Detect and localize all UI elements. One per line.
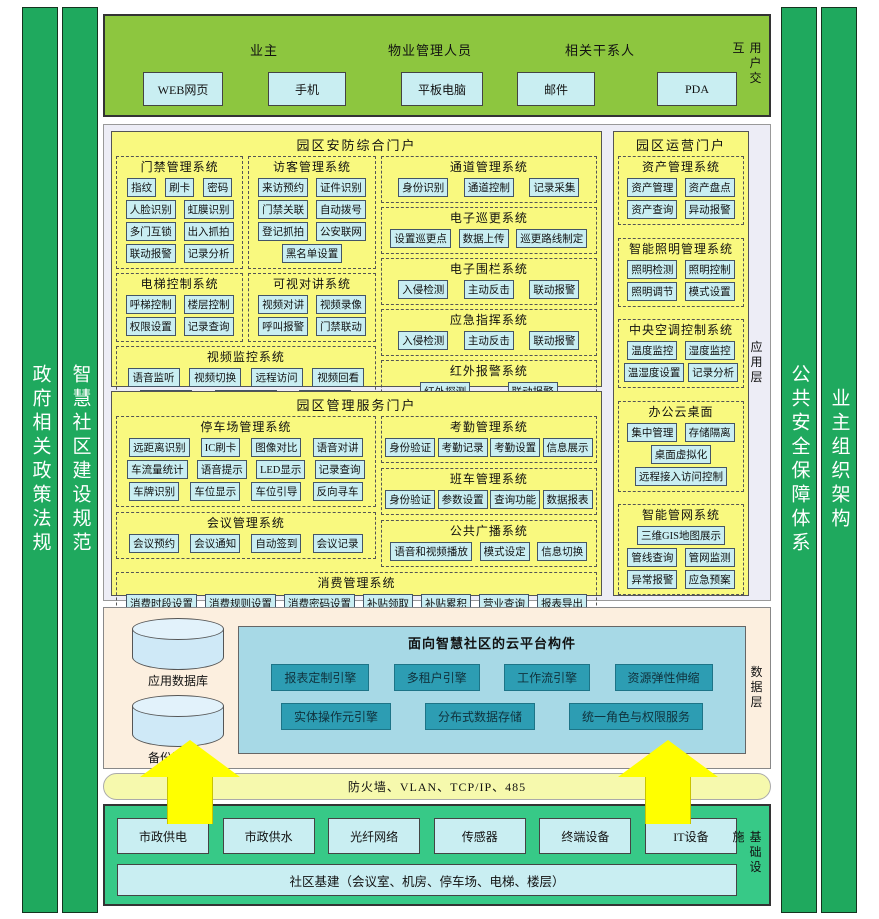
feature-row: 资产管理资产盘点 [622,178,740,197]
feature-chip: 视频切换 [189,368,241,387]
elevator-system: 电梯控制系统 呼梯控制楼层控制权限设置记录查询 [116,273,243,342]
feature-chip: 自动签到 [251,534,301,553]
feature-chip: 语音对讲 [313,438,363,457]
sidebar-policy-regulations: 政府相关政策法规 [22,7,58,913]
feature-chip: 身份识别 [398,178,448,197]
feature-row: 语音监听视频切换远程访问视频回看 [120,368,372,387]
feature-chip: 数据上传 [459,229,509,248]
public-broadcast-system: 公共广播系统 语音和视频播放模式设定信息切换 [381,520,597,567]
portal-title: 园区管理服务门户 [116,394,597,416]
patrol-system: 电子巡更系统 设置巡更点数据上传巡更路线制定 [381,207,597,254]
feature-chip: 异动报警 [685,200,735,219]
feature-row: 权限设置记录查询 [120,317,239,336]
fence-system: 电子围栏系统 入侵检测主动反击联动报警 [381,258,597,305]
feature-row: 指纹刷卡密码 [120,178,239,197]
user-group-owner: 业主 [250,40,278,59]
feature-row: 桌面虚拟化 [622,445,740,464]
feature-chip: 资产管理 [627,178,677,197]
sidebar-label: 智慧社区建设规范 [67,364,94,556]
channel-system: 通道管理系统 身份识别通道控制记录采集 [381,156,597,203]
hvac-control-system: 中央空调控制系统 温度监控湿度监控温湿度设置记录分析 [618,319,744,388]
cloud-desktop-system: 办公云桌面 集中管理存储隔离桌面虚拟化远程接入访问控制 [618,401,744,492]
community-base-box: 社区基建（会议室、机房、停车场、电梯、楼层） [117,864,737,896]
feature-chip: 会议通知 [190,534,240,553]
feature-chip: 记录分析 [184,244,234,263]
feature-chip: 联动报警 [529,331,579,350]
feature-chip: 存储隔离 [685,423,735,442]
feature-chip: 多门互锁 [126,222,176,241]
feature-row: 集中管理存储隔离 [622,423,740,442]
asset-system: 资产管理系统 资产管理资产盘点资产查询异动报警 [618,156,744,225]
shuttle-bus-system: 班车管理系统 身份验证参数设置查询功能数据报表 [381,468,597,515]
layer-label-infrastructure: 基础设施 [730,831,764,880]
feature-row: 身份识别通道控制记录采集 [385,178,593,197]
feature-chip: 照明调节 [627,282,677,301]
feature-chip: 身份验证 [385,438,435,457]
feature-row: 语音和视频播放模式设定信息切换 [385,542,593,561]
meeting-system: 会议管理系统 会议预约会议通知自动签到会议记录 [116,512,376,559]
feature-chip: 工作流引擎 [504,664,590,691]
device-pda: PDA [657,72,737,106]
feature-row: 会议预约会议通知自动签到会议记录 [120,534,372,553]
feature-chip: 设置巡更点 [390,229,451,248]
database-cylinder [132,618,224,670]
feature-row: 入侵检测主动反击联动报警 [385,280,593,299]
feature-row: 黑名单设置 [252,244,371,263]
feature-row: 车流量统计语音提示LED显示记录查询 [120,460,372,479]
feature-row: 照明检测照明控制 [622,260,740,279]
feature-chip: 主动反击 [464,331,514,350]
feature-chip: 入侵检测 [398,331,448,350]
feature-row: 来访预约证件识别 [252,178,371,197]
operation-portal: 园区运营门户 资产管理系统 资产管理资产盘点资产查询异动报警 智能照明管理系统 … [613,131,749,596]
feature-chip: 语音和视频播放 [390,542,472,561]
feature-chip: 实体操作元引擎 [281,703,391,730]
feature-row: 多门互锁出入抓拍 [120,222,239,241]
feature-chip: 视频回看 [312,368,364,387]
feature-chip: 通道控制 [464,178,514,197]
sidebar-label: 公共安全保障体系 [786,364,813,556]
feature-chip: 车位引导 [251,482,301,501]
feature-row: 实体操作元引擎分布式数据存储统一角色与权限服务 [247,703,737,730]
feature-chip: 记录查询 [315,460,365,479]
feature-chip: 三维GIS地图展示 [637,526,725,545]
feature-chip: 集中管理 [627,423,677,442]
feature-chip: 证件识别 [316,178,366,197]
feature-chip: 密码 [203,178,232,197]
feature-row: 呼叫报警门禁联动 [252,317,371,336]
layer-label-user-interaction: 用户交互 [730,41,764,91]
attendance-system: 考勤管理系统 身份验证考勤记录考勤设置信息展示 [381,416,597,463]
feature-chip: 公安联网 [316,222,366,241]
feature-chip: 统一角色与权限服务 [569,703,703,730]
feature-chip: 图像对比 [251,438,301,457]
feature-chip: 资源弹性伸缩 [615,664,713,691]
user-group-stakeholders: 相关干系人 [565,40,635,59]
feature-chip: 自动拨号 [316,200,366,219]
feature-row: 人脸识别虹膜识别 [120,200,239,219]
feature-chip: 指纹 [127,178,156,197]
feature-chip: 联动报警 [529,280,579,299]
sidebar-construction-standards: 智慧社区建设规范 [62,7,98,913]
sidebar-label: 业主组织架构 [826,388,853,532]
feature-chip: 多租户引擎 [394,664,480,691]
feature-row: 设置巡更点数据上传巡更路线制定 [385,229,593,248]
feature-row: 温度监控湿度监控 [622,341,740,360]
feature-chip: 考勤设置 [490,438,540,457]
feature-row: 身份验证考勤记录考勤设置信息展示 [385,438,593,457]
feature-chip: 人脸识别 [126,200,176,219]
feature-chip: 门禁联动 [316,317,366,336]
feature-chip: 门禁关联 [258,200,308,219]
up-arrow [140,740,240,824]
visitor-system: 访客管理系统 来访预约证件识别门禁关联自动拨号登记抓拍公安联网黑名单设置 [248,156,375,269]
cloud-platform-box: 面向智慧社区的云平台构件 报表定制引擎多租户引擎工作流引擎资源弹性伸缩实体操作元… [238,626,746,754]
infrastructure-box: 传感器 [434,818,526,854]
feature-chip: 登记抓拍 [258,222,308,241]
feature-chip: 考勤记录 [438,438,488,457]
sidebar-owner-organization: 业主组织架构 [821,7,857,913]
feature-row: 身份验证参数设置查询功能数据报表 [385,490,593,509]
feature-chip: 楼层控制 [184,295,234,314]
feature-chip: 湿度监控 [685,341,735,360]
feature-chip: 会议预约 [129,534,179,553]
feature-chip: 呼梯控制 [126,295,176,314]
feature-chip: 照明检测 [627,260,677,279]
sidebar-public-safety: 公共安全保障体系 [781,7,817,913]
feature-chip: 参数设置 [438,490,488,509]
arrow-head [618,740,718,777]
feature-chip: 语音监听 [128,368,180,387]
feature-chip: 信息切换 [537,542,587,561]
feature-chip: 资产盘点 [685,178,735,197]
feature-chip: 权限设置 [126,317,176,336]
feature-row: 登记抓拍公安联网 [252,222,371,241]
feature-chip: 视频对讲 [258,295,308,314]
feature-chip: IC刷卡 [201,438,241,457]
feature-chip: 反向寻车 [313,482,363,501]
feature-row: 呼梯控制楼层控制 [120,295,239,314]
up-arrow [618,740,718,824]
feature-chip: 联动报警 [126,244,176,263]
door-access-system: 门禁管理系统 指纹刷卡密码人脸识别虹膜识别多门互锁出入抓拍联动报警记录分析 [116,156,243,269]
feature-chip: 身份验证 [385,490,435,509]
feature-chip: 出入抓拍 [184,222,234,241]
feature-chip: 车牌识别 [129,482,179,501]
feature-chip: 照明控制 [685,260,735,279]
feature-chip: 呼叫报警 [258,317,308,336]
feature-chip: 远程访问 [251,368,303,387]
feature-chip: 信息展示 [543,438,593,457]
feature-row: 异常报警应急预案 [622,570,740,589]
infrastructure-box: 光纤网络 [328,818,420,854]
feature-chip: 异常报警 [627,570,677,589]
feature-chip: 温湿度设置 [624,363,685,382]
feature-chip: 记录采集 [529,178,579,197]
feature-chip: 查询功能 [490,490,540,509]
feature-row: 视频对讲视频录像 [252,295,371,314]
feature-chip: 管线查询 [627,548,677,567]
feature-row: 远距离识别IC刷卡图像对比语音对讲 [120,438,372,457]
feature-chip: 模式设置 [685,282,735,301]
feature-chip: 虹膜识别 [184,200,234,219]
feature-row: 照明调节模式设置 [622,282,740,301]
feature-chip: 车流量统计 [127,460,188,479]
layer-label-data: 数据层 [748,666,765,711]
feature-chip: 温度监控 [627,341,677,360]
feature-row: 远程接入访问控制 [622,467,740,486]
feature-chip: 视频录像 [316,295,366,314]
feature-row: 三维GIS地图展示 [622,526,740,545]
intercom-system: 可视对讲系统 视频对讲视频录像呼叫报警门禁联动 [248,273,375,342]
device-web: WEB网页 [143,72,223,106]
cloud-platform-title: 面向智慧社区的云平台构件 [247,633,737,652]
feature-chip: 来访预约 [258,178,308,197]
feature-chip: 分布式数据存储 [425,703,535,730]
user-interaction-layer: 业主 物业管理人员 相关干系人 WEB网页 手机 平板电脑 邮件 PDA 用户交… [103,14,771,117]
parking-system: 停车场管理系统 远距离识别IC刷卡图像对比语音对讲车流量统计语音提示LED显示记… [116,416,376,507]
database-label: 应用数据库 [148,672,208,689]
feature-chip: 资产查询 [627,200,677,219]
layer-label-application: 应用层 [748,340,765,385]
feature-chip: 模式设定 [480,542,530,561]
feature-chip: 语音提示 [197,460,247,479]
feature-chip: 远距离识别 [129,438,190,457]
arrow-body [167,777,213,824]
feature-chip: 报表定制引擎 [271,664,369,691]
feature-chip: 记录分析 [688,363,738,382]
feature-row: 联动报警记录分析 [120,244,239,263]
feature-chip: 刷卡 [165,178,194,197]
feature-chip: 黑名单设置 [282,244,343,263]
user-group-property-staff: 物业管理人员 [388,40,472,59]
feature-chip: 数据报表 [543,490,593,509]
feature-chip: 车位显示 [190,482,240,501]
network-bar-label: 防火墙、VLAN、TCP/IP、485 [348,778,526,795]
feature-chip: 记录查询 [184,317,234,336]
feature-row: 车牌识别车位显示车位引导反向寻车 [120,482,372,501]
portal-title: 园区运营门户 [618,134,744,156]
feature-chip: 巡更路线制定 [516,229,587,248]
device-email: 邮件 [517,72,595,106]
feature-chip: 主动反击 [464,280,514,299]
application-layer: 园区安防综合门户 门禁管理系统 指纹刷卡密码人脸识别虹膜识别多门互锁出入抓拍联动… [103,124,771,601]
portal-title: 园区安防综合门户 [116,134,597,156]
feature-row: 管线查询管网监测 [622,548,740,567]
feature-row: 温湿度设置记录分析 [622,363,740,382]
feature-chip: 桌面虚拟化 [651,445,712,464]
arrow-body [645,777,691,824]
smart-lighting-system: 智能照明管理系统 照明检测照明控制照明调节模式设置 [618,238,744,307]
feature-row: 门禁关联自动拨号 [252,200,371,219]
arrow-head [140,740,240,777]
feature-row: 资产查询异动报警 [622,200,740,219]
service-portal: 园区管理服务门户 停车场管理系统 远距离识别IC刷卡图像对比语音对讲车流量统计语… [111,391,602,596]
feature-row: 报表定制引擎多租户引擎工作流引擎资源弹性伸缩 [247,664,737,691]
feature-chip: LED显示 [256,460,305,479]
sidebar-label: 政府相关政策法规 [27,364,54,556]
feature-chip: 应急预案 [685,570,735,589]
feature-chip: 远程接入访问控制 [635,467,727,486]
device-tablet: 平板电脑 [401,72,483,106]
architecture-diagram: 政府相关政策法规 智慧社区建设规范 公共安全保障体系 业主组织架构 业主 物业管… [0,0,879,919]
device-phone: 手机 [268,72,346,106]
security-portal: 园区安防综合门户 门禁管理系统 指纹刷卡密码人脸识别虹膜识别多门互锁出入抓拍联动… [111,131,602,387]
emergency-command-system: 应急指挥系统 入侵检测主动反击联动报警 [381,309,597,356]
feature-chip: 管网监测 [685,548,735,567]
feature-row: 入侵检测主动反击联动报警 [385,331,593,350]
feature-chip: 会议记录 [313,534,363,553]
pipe-network-system: 智能管网系统 三维GIS地图展示管线查询管网监测异常报警应急预案 [618,504,744,595]
feature-chip: 入侵检测 [398,280,448,299]
